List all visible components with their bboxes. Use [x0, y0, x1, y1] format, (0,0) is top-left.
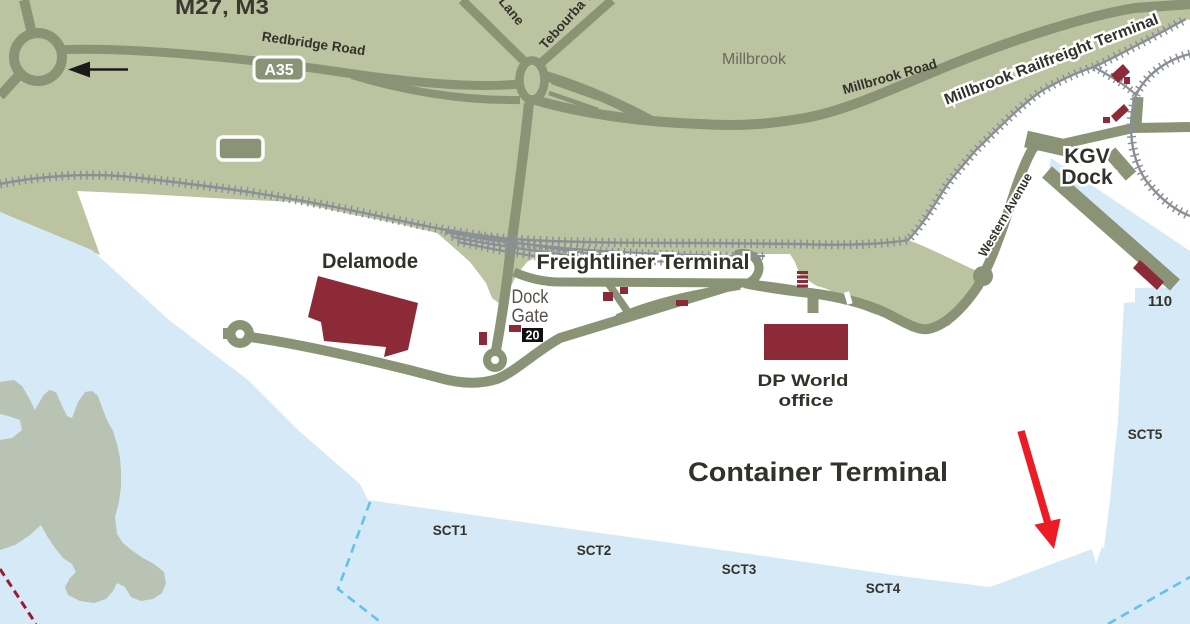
svg-text:Dock: Dock	[512, 287, 549, 308]
svg-text:office: office	[779, 391, 834, 410]
svg-text:Dock: Dock	[1061, 166, 1113, 189]
svg-text:SCT1: SCT1	[433, 523, 468, 538]
svg-text:SCT2: SCT2	[577, 543, 612, 558]
svg-text:SCT5: SCT5	[1128, 427, 1163, 442]
svg-text:M27, M3: M27, M3	[175, 0, 269, 19]
svg-text:A35: A35	[264, 62, 293, 79]
svg-text:110: 110	[1148, 293, 1172, 310]
svg-text:Freightliner Terminal: Freightliner Terminal	[537, 251, 750, 274]
svg-text:KGV: KGV	[1064, 145, 1110, 168]
svg-text:Gate: Gate	[512, 306, 549, 327]
svg-text:Delamode: Delamode	[322, 250, 418, 273]
svg-text:Container Terminal: Container Terminal	[688, 457, 948, 487]
svg-text:SCT4: SCT4	[866, 581, 901, 596]
svg-text:DP World: DP World	[758, 371, 849, 390]
svg-text:Millbrook: Millbrook	[722, 51, 787, 68]
svg-text:20: 20	[526, 329, 540, 343]
svg-text:SCT3: SCT3	[722, 562, 757, 577]
